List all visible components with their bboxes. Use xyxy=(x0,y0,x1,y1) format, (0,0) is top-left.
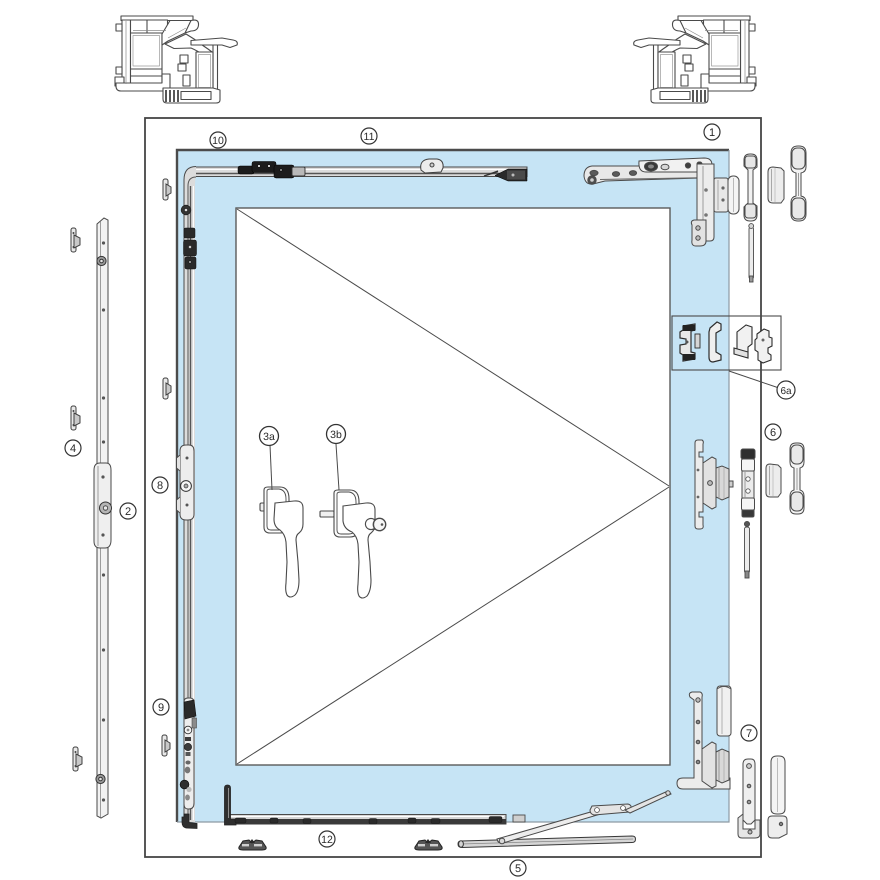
svg-text:6: 6 xyxy=(770,427,776,439)
svg-text:2: 2 xyxy=(125,506,131,518)
svg-text:4: 4 xyxy=(70,443,76,455)
svg-text:5: 5 xyxy=(515,863,521,875)
svg-text:9: 9 xyxy=(158,702,164,714)
svg-text:12: 12 xyxy=(321,834,333,846)
svg-text:3a: 3a xyxy=(263,431,275,443)
svg-text:10: 10 xyxy=(212,135,224,147)
svg-text:3b: 3b xyxy=(330,429,342,441)
svg-text:8: 8 xyxy=(157,480,163,492)
svg-text:1: 1 xyxy=(709,127,715,139)
svg-text:11: 11 xyxy=(364,131,375,143)
svg-text:6a: 6a xyxy=(780,386,792,397)
svg-text:7: 7 xyxy=(746,728,752,740)
